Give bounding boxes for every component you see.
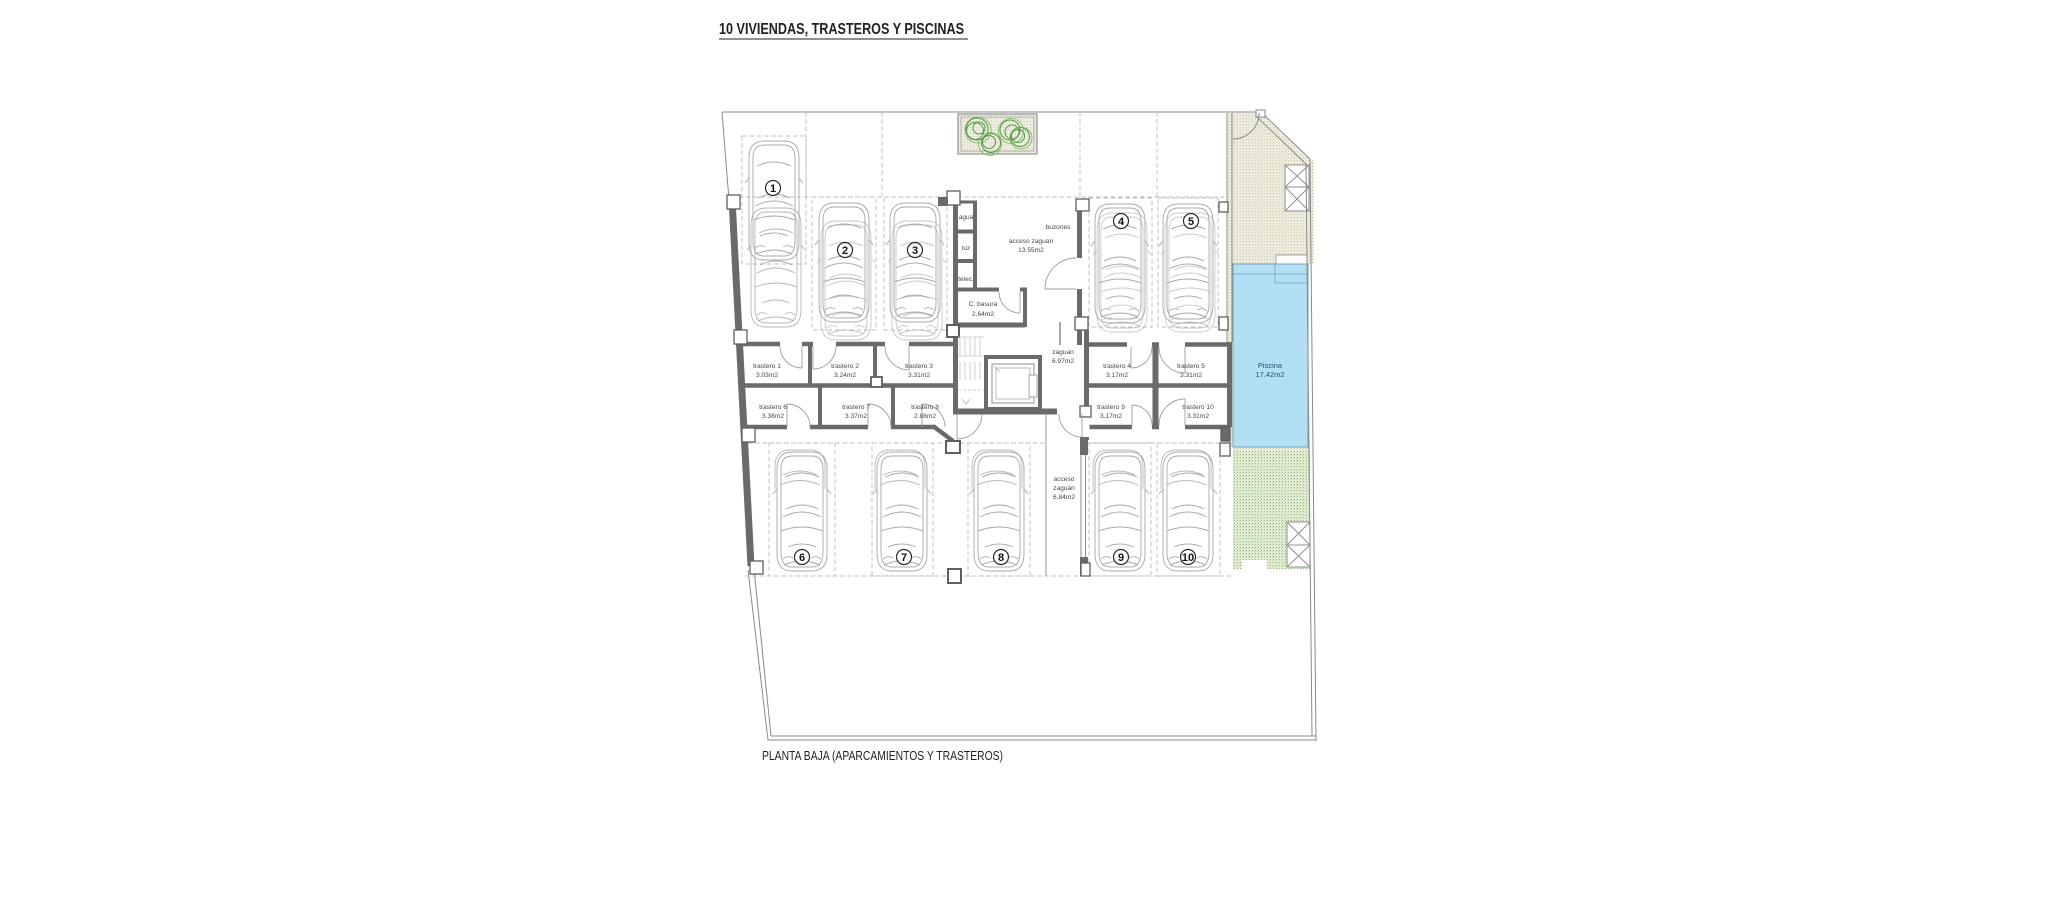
svg-text:6: 6: [799, 552, 805, 564]
svg-text:trastero 2: trastero 2: [831, 363, 859, 370]
svg-text:2.64m2: 2.64m2: [972, 311, 994, 318]
svg-text:3.03m2: 3.03m2: [756, 372, 778, 379]
svg-text:trastero 6: trastero 6: [759, 404, 787, 411]
svg-text:telec.: telec.: [958, 276, 974, 283]
svg-text:3.38m2: 3.38m2: [762, 413, 784, 420]
svg-text:10 VIVIENDAS, TRASTEROS Y PISC: 10 VIVIENDAS, TRASTEROS Y PISCINAS: [719, 21, 964, 38]
svg-text:trastero 1: trastero 1: [753, 363, 781, 370]
svg-text:3.31m2: 3.31m2: [1180, 372, 1202, 379]
svg-text:luz: luz: [962, 245, 970, 252]
svg-text:1: 1: [770, 183, 776, 195]
svg-text:zaguán: zaguán: [1053, 485, 1075, 492]
svg-text:trastero 9: trastero 9: [1097, 404, 1125, 411]
svg-text:2.88m2: 2.88m2: [914, 413, 936, 420]
svg-text:3.17m2: 3.17m2: [1106, 372, 1128, 379]
svg-text:9: 9: [1118, 552, 1124, 564]
svg-text:4: 4: [1118, 216, 1125, 228]
svg-text:3.24m2: 3.24m2: [834, 372, 856, 379]
svg-text:C. basura: C. basura: [969, 301, 998, 308]
svg-text:trastero 3: trastero 3: [905, 363, 933, 370]
svg-text:buzones: buzones: [1046, 224, 1072, 231]
svg-text:PLANTA BAJA (APARCAMIENTOS Y T: PLANTA BAJA (APARCAMIENTOS Y TRASTEROS): [762, 748, 1003, 763]
svg-text:6.97m2: 6.97m2: [1052, 358, 1074, 365]
svg-text:acceso: acceso: [1054, 476, 1075, 483]
svg-text:2: 2: [842, 245, 848, 257]
svg-text:13.55m2: 13.55m2: [1018, 247, 1044, 254]
svg-text:3.31m2: 3.31m2: [1187, 413, 1209, 420]
svg-text:6.84m2: 6.84m2: [1053, 494, 1075, 501]
svg-text:trastero 10: trastero 10: [1182, 404, 1214, 411]
svg-text:agua: agua: [959, 214, 974, 221]
svg-text:trastero 4: trastero 4: [1103, 363, 1131, 370]
svg-text:3.37m2: 3.37m2: [845, 413, 867, 420]
svg-text:10: 10: [1182, 552, 1194, 564]
svg-text:trastero 5: trastero 5: [1177, 363, 1205, 370]
svg-text:3.17m2: 3.17m2: [1100, 413, 1122, 420]
svg-text:acceso zaguan: acceso zaguan: [1009, 238, 1054, 245]
svg-text:trastero 7: trastero 7: [842, 404, 870, 411]
svg-text:Piscina: Piscina: [1258, 361, 1283, 370]
svg-text:17.42m2: 17.42m2: [1255, 370, 1284, 379]
svg-text:5: 5: [1188, 216, 1194, 228]
svg-text:3.31m2: 3.31m2: [908, 372, 930, 379]
svg-text:3: 3: [912, 245, 918, 257]
svg-text:7: 7: [901, 552, 907, 564]
svg-text:8: 8: [998, 552, 1004, 564]
svg-text:zaguan: zaguan: [1052, 349, 1074, 356]
svg-text:trastero 8: trastero 8: [911, 404, 939, 411]
